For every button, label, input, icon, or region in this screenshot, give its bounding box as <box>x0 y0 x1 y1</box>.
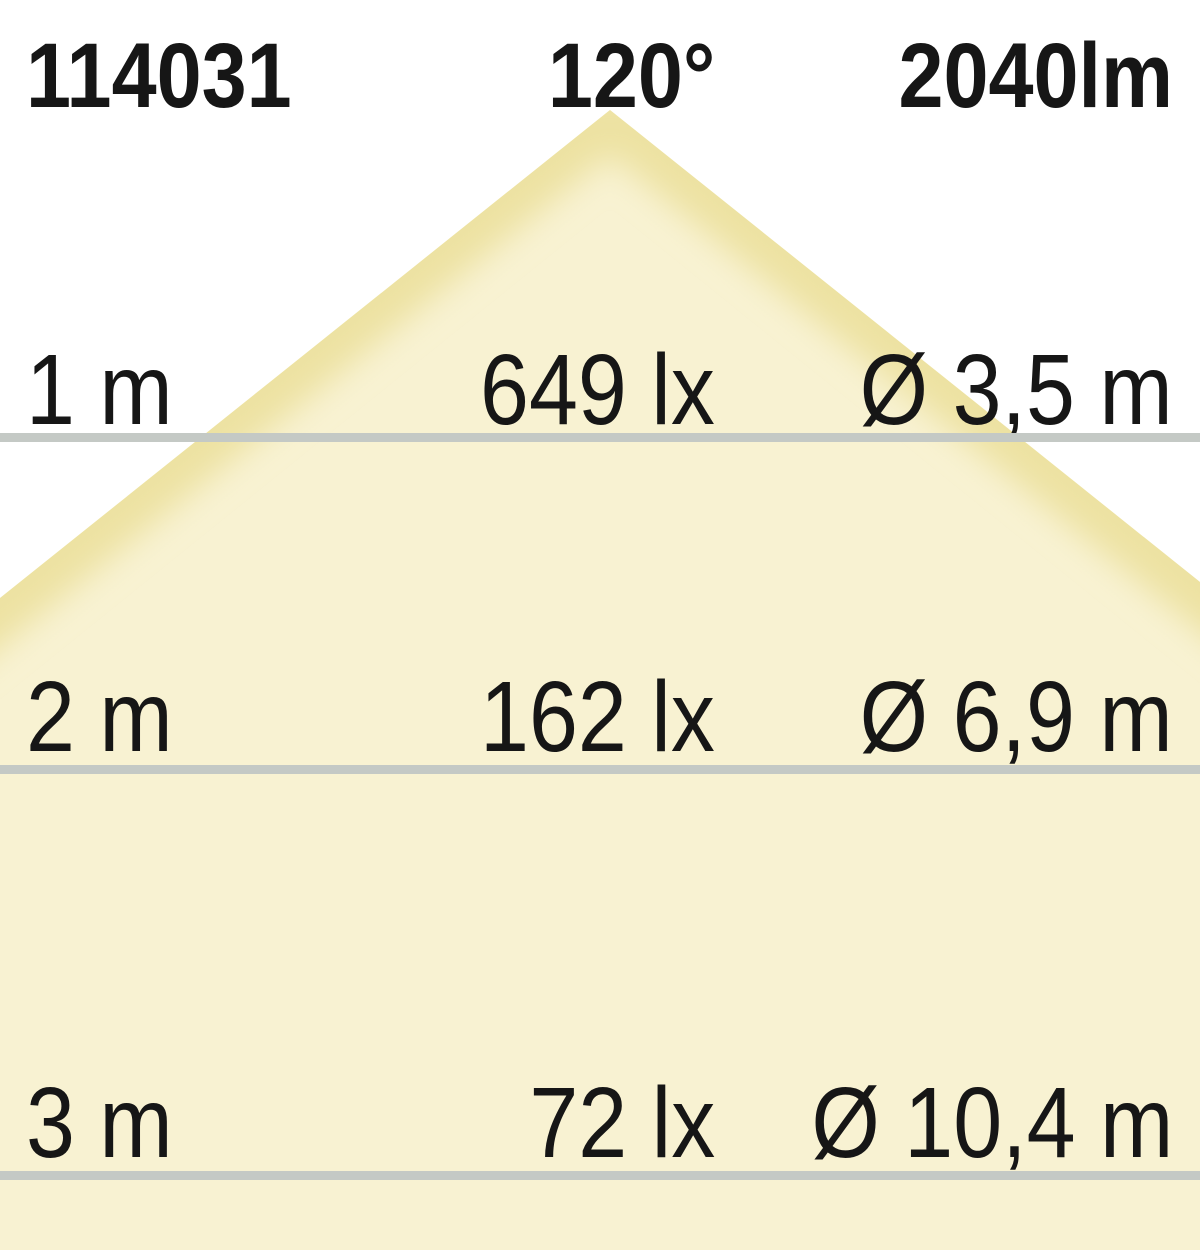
divider-line-3m <box>0 1171 1200 1180</box>
row-2m-illuminance-value: 162 lx <box>480 667 715 767</box>
row-2m-distance-label: 2 m <box>26 667 173 767</box>
article-number-label: 114031 <box>26 30 292 122</box>
row-1m-illuminance-value: 649 lx <box>480 340 715 440</box>
luminous-flux-label: 2040lm <box>898 30 1173 122</box>
beam-angle-label: 120° <box>548 30 715 122</box>
row-1m-distance-label: 1 m <box>26 340 173 440</box>
row-1m-diameter-value: Ø 3,5 m <box>860 340 1173 440</box>
divider-line-1m <box>0 433 1200 442</box>
light-cone <box>0 0 1200 1250</box>
row-3m-illuminance-value: 72 lx <box>529 1073 715 1173</box>
divider-line-2m <box>0 765 1200 774</box>
row-3m-distance-label: 3 m <box>26 1073 173 1173</box>
light-cone-diagram: 114031 120° 2040lm 1 m 649 lx Ø 3,5 m 2 … <box>0 0 1200 1250</box>
row-3m-diameter-value: Ø 10,4 m <box>811 1073 1173 1173</box>
row-2m-diameter-value: Ø 6,9 m <box>860 667 1173 767</box>
